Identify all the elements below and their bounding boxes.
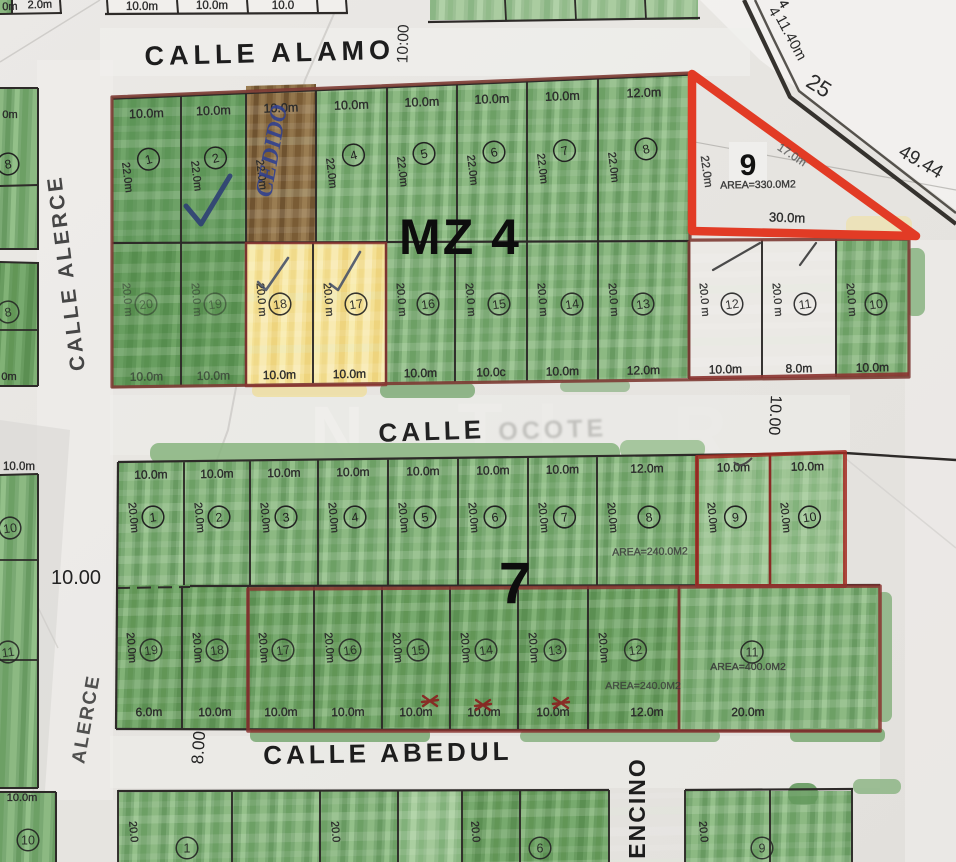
svg-text:10.0m: 10.0m [856, 360, 890, 375]
svg-text:10.0m: 10.0m [196, 103, 231, 118]
svg-text:10.0m: 10.0m [263, 368, 297, 383]
svg-text:10.0m: 10.0m [126, 1, 158, 13]
svg-text:10: 10 [802, 510, 818, 526]
svg-text:10.0m: 10.0m [709, 362, 743, 377]
svg-text:MZ 4: MZ 4 [399, 209, 521, 265]
svg-text:10.0m: 10.0m [264, 705, 298, 720]
svg-text:8.00: 8.00 [188, 730, 209, 764]
svg-text:11: 11 [1, 645, 16, 661]
svg-text:8.0m: 8.0m [785, 361, 812, 375]
svg-text:10.0m: 10.0m [546, 462, 580, 477]
svg-text:15: 15 [491, 297, 507, 313]
svg-text:11: 11 [798, 297, 813, 313]
svg-text:AREA=240.0M2: AREA=240.0M2 [612, 545, 688, 558]
svg-text:10.0m: 10.0m [404, 366, 438, 381]
svg-text:9: 9 [740, 149, 757, 182]
svg-text:10.0c: 10.0c [476, 365, 506, 380]
svg-text:10.0m: 10.0m [3, 461, 35, 473]
svg-text:AREA=330.0M2: AREA=330.0M2 [720, 178, 796, 191]
svg-text:13: 13 [547, 643, 563, 659]
svg-text:10.0m: 10.0m [545, 89, 580, 104]
svg-text:10.0m: 10.0m [334, 98, 369, 113]
svg-text:10.0: 10.0 [272, 0, 294, 12]
svg-text:11: 11 [746, 646, 759, 660]
svg-text:10.0m: 10.0m [791, 459, 825, 474]
svg-text:16: 16 [342, 643, 358, 659]
svg-text:7: 7 [499, 551, 531, 616]
svg-text:17: 17 [348, 297, 364, 313]
svg-text:18: 18 [272, 297, 288, 313]
svg-text:10.0m: 10.0m [546, 364, 580, 379]
svg-text:10.0m: 10.0m [130, 369, 164, 384]
svg-text:0m: 0m [2, 109, 17, 121]
svg-text:CALLE ABEDUL: CALLE ABEDUL [263, 736, 513, 770]
svg-text:10.0m: 10.0m [134, 467, 168, 482]
svg-text:10.0m: 10.0m [129, 106, 164, 121]
svg-text:6: 6 [537, 842, 544, 856]
svg-text:12.0m: 12.0m [626, 85, 661, 100]
svg-text:10: 10 [2, 521, 18, 537]
svg-text:ENCINO: ENCINO [624, 757, 650, 858]
svg-text:12: 12 [724, 297, 740, 313]
svg-text:1: 1 [184, 842, 191, 856]
svg-text:13: 13 [635, 297, 651, 313]
svg-text:10.0m: 10.0m [717, 460, 751, 475]
svg-text:10.0m: 10.0m [333, 367, 367, 382]
svg-text:20.0: 20.0 [468, 821, 482, 843]
svg-text:10:00: 10:00 [394, 24, 412, 64]
svg-text:10.0m: 10.0m [200, 467, 234, 482]
svg-text:10.0m: 10.0m [404, 95, 439, 110]
svg-text:10.0m: 10.0m [476, 463, 510, 478]
svg-text:20.0: 20.0 [328, 821, 342, 843]
svg-text:10: 10 [868, 297, 884, 313]
svg-text:14: 14 [478, 643, 494, 659]
svg-text:12.0m: 12.0m [627, 363, 661, 378]
svg-text:19: 19 [207, 297, 223, 313]
svg-text:18: 18 [209, 643, 225, 659]
svg-text:2.0m: 2.0m [27, 0, 52, 11]
svg-text:10.0m: 10.0m [474, 92, 509, 107]
svg-text:0m: 0m [2, 1, 18, 14]
svg-text:14: 14 [564, 297, 580, 313]
svg-text:6.0m: 6.0m [135, 705, 162, 719]
svg-text:10.0m: 10.0m [267, 466, 301, 481]
svg-text:20.0: 20.0 [126, 821, 140, 843]
svg-text:20.0m: 20.0m [731, 705, 765, 720]
svg-text:AREA=240.0M2: AREA=240.0M2 [605, 680, 681, 692]
svg-text:0m: 0m [1, 371, 16, 383]
svg-text:OCOTE: OCOTE [498, 414, 608, 446]
svg-text:10.0m: 10.0m [198, 705, 232, 720]
svg-text:12.0m: 12.0m [630, 461, 664, 476]
svg-text:15: 15 [410, 643, 426, 659]
svg-text:9: 9 [759, 842, 766, 856]
svg-text:10.0m: 10.0m [336, 465, 370, 480]
svg-text:10.00: 10.00 [765, 395, 784, 436]
svg-text:10.0m: 10.0m [196, 0, 228, 12]
svg-text:10.0m: 10.0m [7, 792, 38, 804]
svg-text:20.0: 20.0 [696, 821, 710, 843]
svg-text:10.0m: 10.0m [406, 464, 440, 479]
svg-text:20: 20 [138, 297, 154, 313]
svg-text:16: 16 [420, 297, 436, 313]
svg-text:10.0m: 10.0m [399, 705, 433, 720]
svg-text:17: 17 [275, 643, 291, 659]
svg-text:12: 12 [628, 643, 644, 659]
svg-text:30.0m: 30.0m [769, 209, 806, 225]
svg-text:10.00: 10.00 [51, 567, 101, 589]
svg-text:10: 10 [21, 834, 35, 848]
svg-text:10.0m: 10.0m [331, 705, 365, 720]
svg-text:19: 19 [143, 643, 159, 659]
svg-text:AREA=400.0M2: AREA=400.0M2 [710, 661, 786, 673]
svg-text:12.0m: 12.0m [630, 705, 664, 720]
svg-text:CALLE: CALLE [378, 414, 486, 448]
svg-text:10.0m: 10.0m [197, 368, 231, 383]
